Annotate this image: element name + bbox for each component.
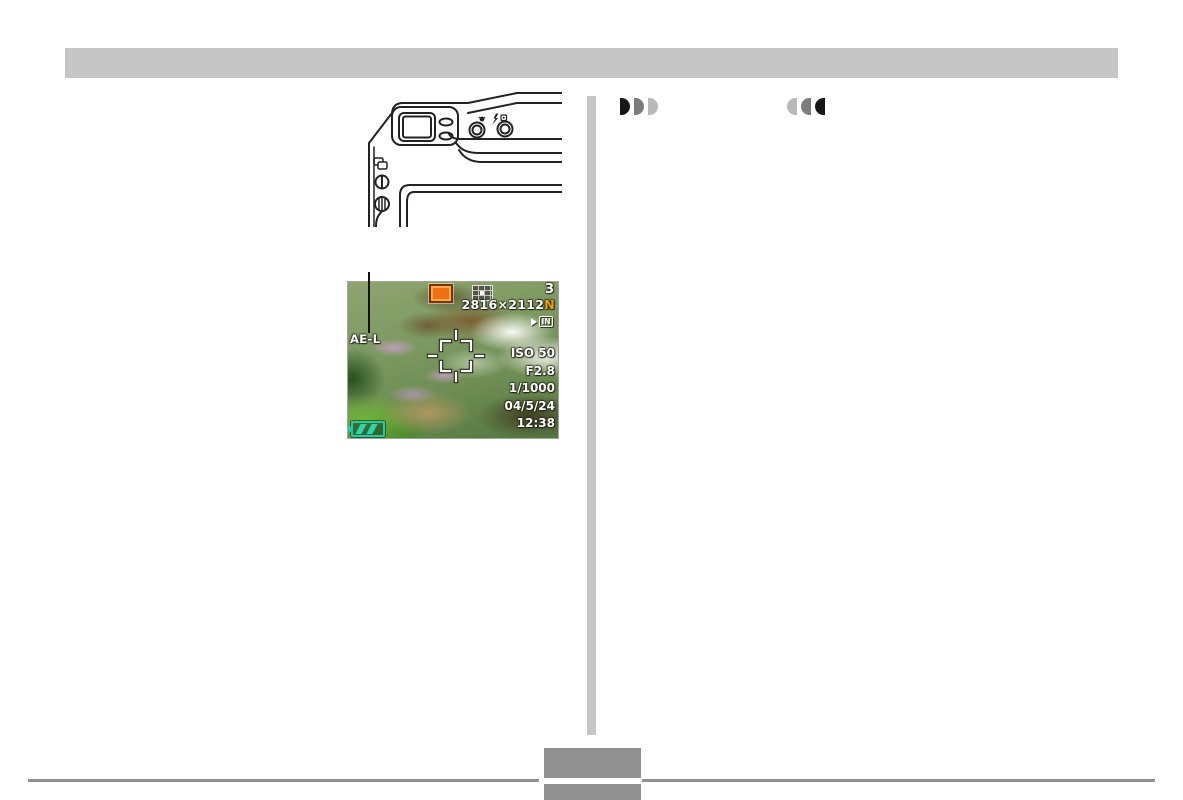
page-number-tab-lower (544, 784, 641, 800)
increase-indicator-icon (620, 98, 658, 115)
ae-lock-label: AE-L (350, 332, 380, 346)
recording-mode-icon (429, 284, 453, 303)
aperture-label: F2.8 (526, 364, 555, 378)
callout-line (368, 272, 370, 333)
iso-label: ISO 50 (511, 346, 555, 360)
indicator-lamp (440, 119, 453, 126)
battery-bar (366, 424, 377, 434)
disc-dark (620, 98, 630, 115)
memory-arrow-icon (531, 318, 537, 326)
header-bar (65, 48, 1118, 78)
manual-page: { "document": { "type": "camera manual p… (0, 0, 1183, 800)
quality-label: N (544, 297, 555, 312)
camera-top-edge (403, 93, 562, 103)
image-size-label: 2816×2112N (461, 297, 555, 312)
image-size-value: 2816×2112 (461, 297, 544, 312)
disc-dark (815, 98, 825, 115)
footer-rule-left (28, 779, 539, 782)
disc-light (648, 98, 658, 115)
monitor-screen: 3 2816×2112N IN AE-L ISO 50 F2.8 1/1000 … (348, 282, 558, 438)
disc-light (787, 98, 797, 115)
disc-mid (801, 98, 811, 115)
column-divider (587, 96, 596, 735)
battery-bar (355, 424, 366, 434)
decrease-indicator-icon (787, 98, 825, 115)
shutter-label: 1/1000 (509, 381, 555, 395)
disc-mid (634, 98, 644, 115)
footer-rule-right (642, 779, 1155, 782)
battery-terminal (348, 426, 351, 432)
exposure-info: ISO 50 F2.8 1/1000 04/5/24 12:38 (504, 346, 555, 430)
time-label: 12:38 (517, 416, 555, 430)
remaining-shots: 3 (545, 282, 554, 297)
macro-icon (479, 117, 485, 122)
battery-icon (351, 421, 385, 437)
focus-frame-icon (426, 328, 486, 384)
date-label: 04/5/24 (504, 399, 555, 413)
page-number-tab (544, 748, 641, 778)
callout-stem (376, 211, 382, 227)
memory-label: IN (539, 316, 553, 327)
camera-back-illustration (362, 92, 562, 227)
built-in-memory-icon: IN (531, 316, 553, 327)
